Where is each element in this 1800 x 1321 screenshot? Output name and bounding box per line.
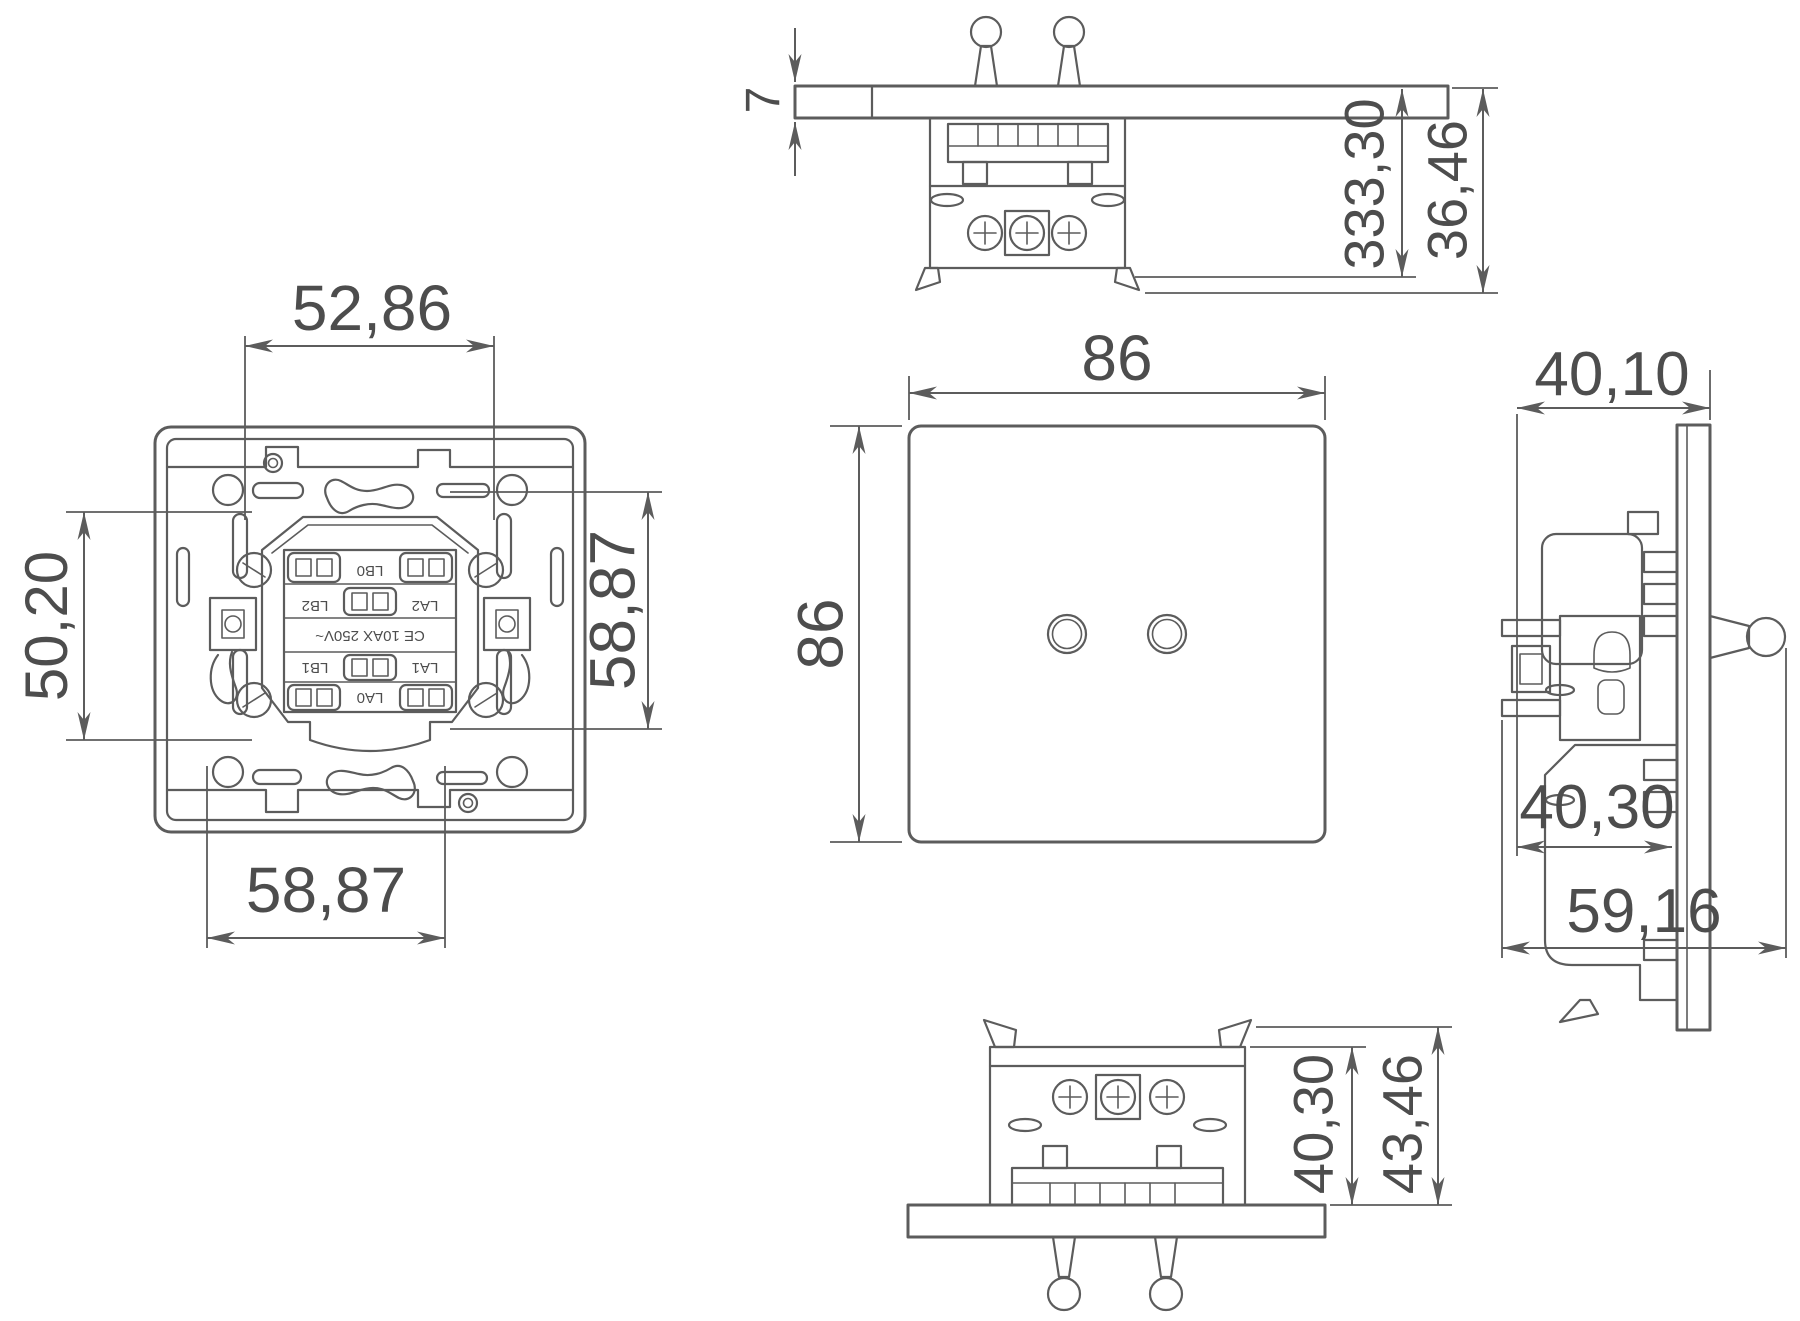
screw-slot xyxy=(475,693,497,707)
terminal-label-la0: LA0 xyxy=(357,689,384,706)
small-screw-bottom-inner xyxy=(464,799,473,808)
dim-front-height: 86 xyxy=(784,598,856,669)
side-clamp-right xyxy=(484,598,530,650)
bottom-mechanism xyxy=(984,1020,1251,1205)
top-claw-right xyxy=(1219,1020,1251,1047)
rating-text: CE 10AX 250V~ xyxy=(315,627,425,644)
corner-hole-bottom-left xyxy=(213,757,243,787)
mechanism-housing xyxy=(930,118,1125,268)
edge-slot-left xyxy=(177,548,189,606)
back-top-notches xyxy=(167,447,573,467)
terminal-port xyxy=(352,593,367,610)
dim-bottom-total: 43,46 xyxy=(1371,1054,1434,1194)
dim-back-left: 50,20 xyxy=(13,551,80,701)
toggle-hole-left xyxy=(1048,615,1086,653)
bracket-arch xyxy=(1594,632,1630,672)
side-clamp-left-hole xyxy=(225,616,241,632)
front-dimensions: 86 86 xyxy=(784,322,1325,842)
bottom-claw-left xyxy=(916,268,940,290)
mechanism-tab xyxy=(1068,162,1092,184)
terminal-port xyxy=(296,689,311,706)
mechanism-cage xyxy=(1012,1168,1223,1205)
mechanism-hood-line xyxy=(272,525,468,553)
toggle-ball xyxy=(1150,1278,1182,1310)
terminal-port xyxy=(296,559,311,576)
top-mechanism xyxy=(916,118,1139,290)
terminal-label-la2: LA2 xyxy=(412,597,439,614)
dim-back-top: 52,86 xyxy=(292,272,452,344)
terminal-label-la1: LA1 xyxy=(412,659,439,676)
tab xyxy=(1644,616,1677,636)
side-clamp-left xyxy=(210,598,256,650)
toggle-hole-right xyxy=(1148,615,1186,653)
terminal-port xyxy=(352,659,367,676)
corner-hole-top-left xyxy=(213,475,243,505)
bone-slot-top xyxy=(325,480,413,513)
dim-top-thickness: 7 xyxy=(737,87,790,114)
terminal-port xyxy=(408,559,423,576)
wing-slot xyxy=(1092,194,1124,206)
toggle-ball xyxy=(1054,17,1084,47)
toggle-ball xyxy=(1048,1278,1080,1310)
toggle-stem-side xyxy=(1710,616,1749,658)
slot-top-left xyxy=(253,483,303,498)
claw-side-bottom xyxy=(1560,1000,1598,1022)
front-view: 86 86 xyxy=(784,322,1325,842)
toggle-ball xyxy=(971,17,1001,47)
clamp-box-window xyxy=(1520,654,1542,684)
terminal-port xyxy=(373,593,388,610)
toggle-stem xyxy=(1155,1237,1177,1277)
dim-top-depth-outer: 36,46 xyxy=(1416,120,1479,260)
back-bottom-notches xyxy=(167,790,573,812)
side-view: 40,10 40,30 59,16 xyxy=(1502,340,1786,1030)
upper-block xyxy=(1542,534,1642,664)
mechanism-cage xyxy=(948,124,1108,162)
dim-top-depth-inner: 333,30 xyxy=(1333,98,1396,269)
dim-back-right: 58,87 xyxy=(576,530,648,690)
back-dimensions: 52,86 50,20 58,87 58,87 xyxy=(13,272,662,948)
bottom-plate xyxy=(908,1205,1325,1237)
back-mechanism: LB0 LB2 LA2 CE 10AX 250V~ LB1 LA1 LA0 xyxy=(210,517,530,751)
corner-hole-top-right xyxy=(497,475,527,505)
terminal-port xyxy=(317,689,332,706)
slot-top-right xyxy=(437,484,489,497)
mechanism-tab xyxy=(1157,1146,1181,1168)
technical-drawing: LB0 LB2 LA2 CE 10AX 250V~ LB1 LA1 LA0 52… xyxy=(0,0,1800,1321)
wing-slot xyxy=(1009,1119,1041,1131)
small-screw-bottom xyxy=(459,794,477,812)
drawing-canvas: LB0 LB2 LA2 CE 10AX 250V~ LB1 LA1 LA0 52… xyxy=(0,0,1800,1321)
claw-hook-right xyxy=(503,652,529,703)
claw-bar-lower xyxy=(1502,700,1560,716)
terminal-label-lb1: LB1 xyxy=(302,659,329,676)
front-plate xyxy=(909,426,1325,842)
bottom-view: 40,30 43,46 xyxy=(908,1020,1452,1310)
tab xyxy=(1644,584,1677,604)
mechanism-tab xyxy=(963,162,987,184)
bone-slot-bottom xyxy=(327,766,415,799)
dim-side-front: 40,10 xyxy=(1534,340,1689,409)
edge-slot-right xyxy=(551,548,563,606)
bottom-dimensions: 40,30 43,46 xyxy=(1250,1027,1452,1205)
terminal-label-lb2: LB2 xyxy=(302,597,329,614)
top-view: 7 333,30 36,46 xyxy=(737,17,1498,293)
dim-side-total: 59,16 xyxy=(1566,877,1721,946)
dim-side-body: 40,30 xyxy=(1519,773,1674,842)
toggle-hole-left-inner xyxy=(1053,620,1082,649)
claw-bar-upper xyxy=(1502,620,1560,636)
terminal-port xyxy=(317,559,332,576)
corner-hole-bottom-right xyxy=(497,757,527,787)
inner-slot-lower-left xyxy=(233,650,247,714)
dim-back-bottom: 58,87 xyxy=(246,854,406,926)
upper-step xyxy=(1628,512,1658,534)
toggle-stem xyxy=(975,46,997,86)
toggle-stem xyxy=(1058,46,1080,86)
inner-slot-upper-left xyxy=(233,514,247,578)
tab xyxy=(1644,552,1677,572)
toggle-stem xyxy=(1053,1237,1075,1277)
top-claw-left xyxy=(984,1020,1016,1047)
terminal-port xyxy=(429,689,444,706)
terminal-port xyxy=(373,659,388,676)
slot-bottom-left xyxy=(253,770,301,784)
wing-slot xyxy=(1194,1119,1226,1131)
terminal-label-lb0: LB0 xyxy=(357,562,384,579)
bottom-claw-right xyxy=(1115,268,1139,290)
terminal-port xyxy=(429,559,444,576)
small-screw-top-inner xyxy=(269,459,278,468)
bracket-pocket xyxy=(1598,680,1624,714)
toggle-ball-side xyxy=(1747,618,1785,656)
back-view: LB0 LB2 LA2 CE 10AX 250V~ LB1 LA1 LA0 52… xyxy=(13,272,662,948)
switch-bracket xyxy=(1560,616,1640,740)
dim-front-width: 86 xyxy=(1081,322,1152,394)
mechanism-tab xyxy=(1043,1146,1067,1168)
mechanism-housing xyxy=(990,1047,1245,1205)
top-dimensions: 7 333,30 36,46 xyxy=(737,28,1498,293)
wing-slot xyxy=(931,194,963,206)
dim-bottom-body: 40,30 xyxy=(1282,1054,1345,1194)
terminal-port xyxy=(408,689,423,706)
side-clamp-right-hole xyxy=(499,616,515,632)
toggle-hole-right-inner xyxy=(1153,620,1182,649)
